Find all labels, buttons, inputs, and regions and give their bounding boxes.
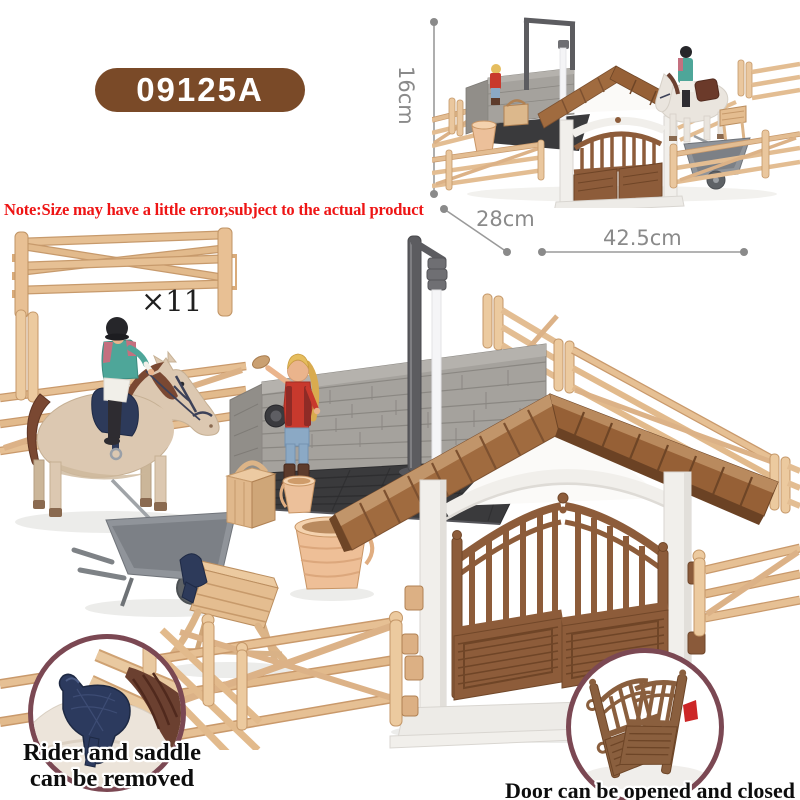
height-dimension-label: 16cm (394, 66, 418, 125)
product-image: 09125A Note:Size may have a little error… (0, 0, 800, 800)
door-inset-art (571, 653, 719, 800)
door-inset (566, 648, 724, 800)
gate-door-left (452, 506, 562, 700)
saddle-inset (28, 634, 186, 792)
thumbnail-photo (432, 2, 800, 208)
water-stream (432, 290, 441, 482)
size-note: Note:Size may have a little error,subjec… (4, 200, 424, 220)
saddle-inset-art (33, 639, 181, 787)
front-right-fence (693, 548, 800, 636)
model-number-badge: 09125A (95, 68, 305, 112)
depth-dimension-label: 28cm (476, 207, 535, 231)
